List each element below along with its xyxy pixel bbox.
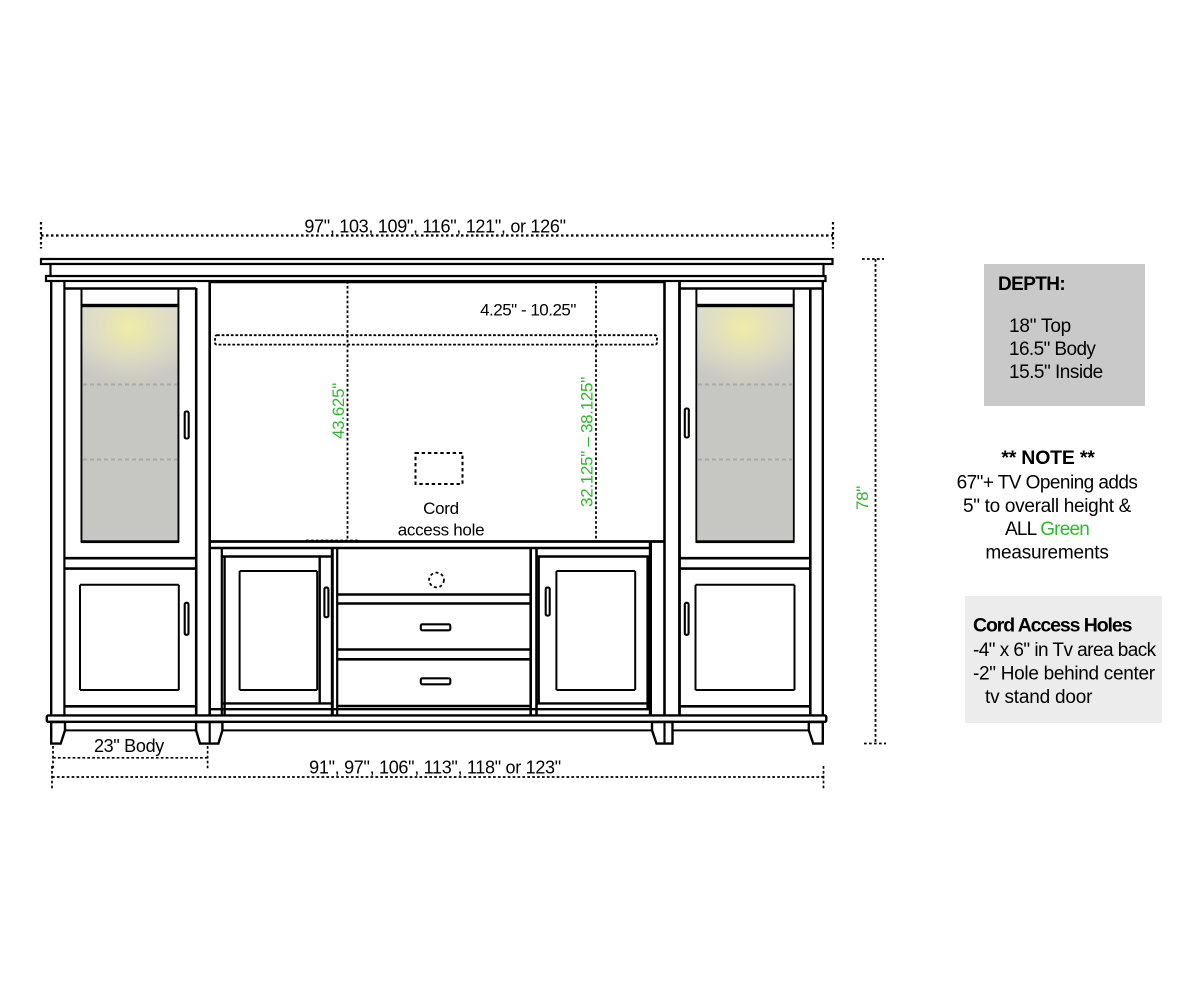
svg-text:4.25" - 10.25": 4.25" - 10.25" [480, 301, 576, 320]
svg-text:Cord Access Holes: Cord Access Holes [973, 615, 1133, 637]
svg-text:measurements: measurements [985, 543, 1108, 564]
svg-text:43.625": 43.625" [329, 383, 348, 439]
svg-text:DEPTH:: DEPTH: [998, 274, 1065, 295]
svg-text:5" to overall height &: 5" to overall height & [963, 496, 1132, 517]
svg-text:-4" x 6" in Tv area back: -4" x 6" in Tv area back [973, 640, 1157, 661]
svg-text:access hole: access hole [398, 521, 484, 540]
svg-text:Cord: Cord [423, 499, 459, 518]
svg-text:32.125" – 38.125": 32.125" – 38.125" [578, 377, 597, 507]
svg-text:tv stand door: tv stand door [985, 687, 1093, 708]
svg-text:23" Body: 23" Body [94, 736, 164, 756]
svg-text:-2" Hole behind center: -2" Hole behind center [973, 664, 1156, 685]
svg-text:91", 97", 106", 113", 118" or: 91", 97", 106", 113", 118" or 123" [309, 758, 561, 778]
svg-text:67"+ TV Opening adds: 67"+ TV Opening adds [957, 473, 1138, 494]
svg-text:97", 103, 109", 116", 121", or: 97", 103, 109", 116", 121", or 126" [304, 217, 565, 237]
svg-text:** NOTE **: ** NOTE ** [1001, 447, 1095, 469]
svg-text:16.5" Body: 16.5" Body [1009, 339, 1096, 360]
svg-text:18" Top: 18" Top [1009, 316, 1071, 337]
svg-text:ALL Green: ALL Green [1005, 519, 1089, 540]
svg-text:78": 78" [853, 486, 872, 510]
svg-text:15.5" Inside: 15.5" Inside [1009, 362, 1103, 383]
